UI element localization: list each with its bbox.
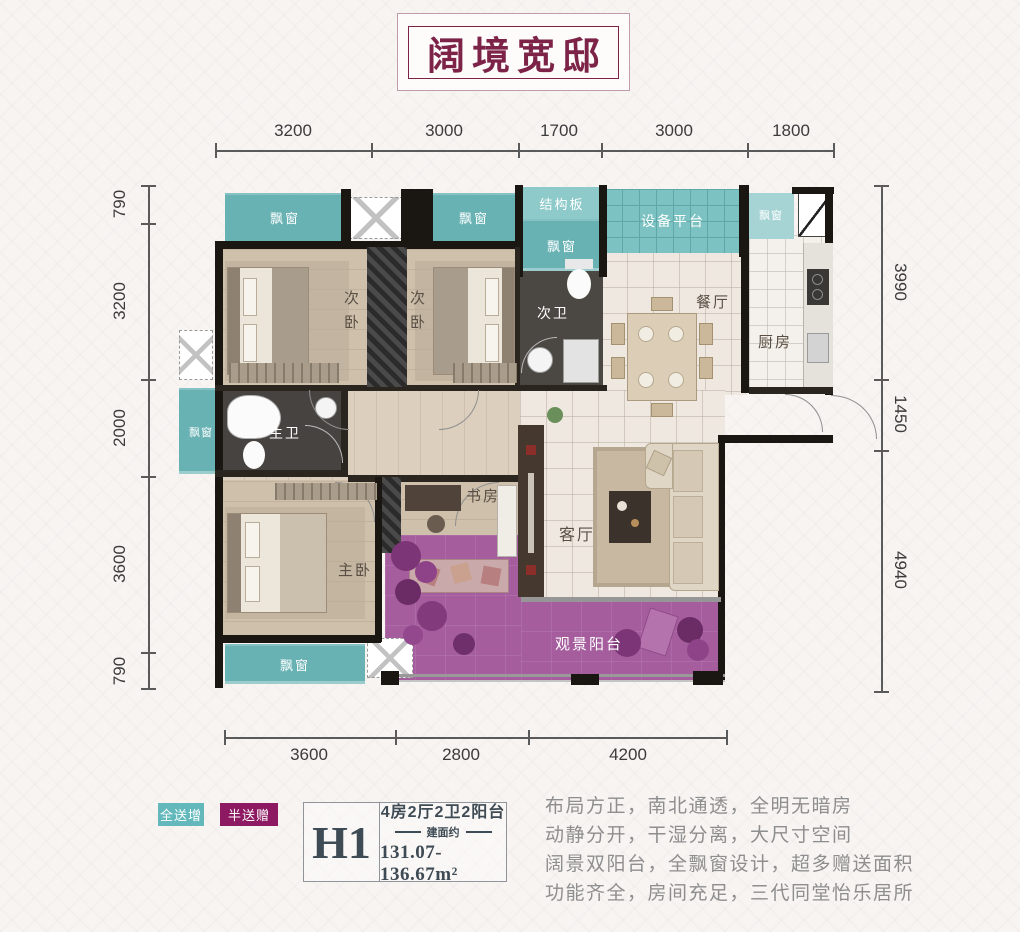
chair <box>699 323 713 345</box>
label-bay-window: 飘窗 <box>523 236 601 255</box>
floor-plan: 飘窗 飘窗 结构板 飘窗 设备平台 飘窗 飘窗 飘窗 次卧 次卧 次卫 餐厅 厨… <box>215 185 835 690</box>
dim-right-1: 3990 <box>890 247 910 317</box>
burner <box>812 274 823 285</box>
coffee-table <box>609 491 651 543</box>
dining-table <box>627 313 697 401</box>
decor <box>631 519 639 527</box>
decor <box>526 445 536 455</box>
balcony-plant <box>415 561 437 583</box>
plate <box>638 372 654 388</box>
dim-top-1: 3200 <box>258 121 328 141</box>
dim-line <box>224 737 728 739</box>
kitchen-counter <box>803 243 833 387</box>
bed-blanket <box>272 268 308 374</box>
shower <box>563 339 599 383</box>
railing-post <box>693 671 723 685</box>
legend-half-gift-badge: 半送赠 <box>220 803 278 826</box>
label-bay-window: 飘窗 <box>255 208 315 227</box>
pillow <box>245 522 260 558</box>
toilet <box>567 269 591 299</box>
dim-tick <box>518 143 520 158</box>
balcony-plant <box>687 639 709 661</box>
desk-chair <box>427 515 445 533</box>
wall-segment <box>515 385 607 391</box>
sofa-cushion <box>673 542 703 584</box>
dim-left-3: 2000 <box>110 393 130 463</box>
burner <box>812 289 823 300</box>
kitchen-sink <box>807 333 829 363</box>
balcony-plant <box>395 579 421 605</box>
dim-right-2: 1450 <box>890 379 910 449</box>
dim-tick <box>726 730 728 745</box>
unit-area-value: 131.07-136.67m² <box>380 842 506 886</box>
dim-tick <box>874 691 889 693</box>
page-title: 阔境宽邸 <box>420 25 607 80</box>
bed-blanket <box>280 514 326 612</box>
dim-tick <box>874 450 889 452</box>
legend-full-gift-badge: 全送增 <box>158 803 204 826</box>
bed-blanket <box>434 268 468 374</box>
door-arc-entry <box>831 395 877 439</box>
wardrobe-column <box>367 247 407 387</box>
bed-headboard <box>228 268 240 374</box>
label-bedroom2b: 次卧 <box>409 287 426 335</box>
balcony-plant <box>417 601 447 631</box>
dim-tick <box>833 143 835 158</box>
dim-tick <box>141 223 156 225</box>
label-bedroom2a: 次卧 <box>343 287 360 335</box>
bed <box>433 267 515 375</box>
dim-tick <box>141 185 156 187</box>
dimension-top: 3200 3000 1700 3000 1800 <box>215 118 835 166</box>
dim-tick <box>224 730 226 745</box>
dim-bottom-1: 3600 <box>274 745 344 765</box>
description: 布局方正，南北通透，全明无暗房 动静分开，干湿分离，大尺寸空间 阔景双阳台，全飘… <box>545 792 995 908</box>
tv-cabinet <box>518 425 544 597</box>
pillow <box>485 324 499 362</box>
wall-segment <box>749 387 833 394</box>
dim-left-2: 3200 <box>110 266 130 336</box>
label-equipment-platform: 设备平台 <box>605 211 741 231</box>
sofa-cushion <box>673 450 703 492</box>
title-frame: 阔境宽邸 <box>397 13 630 91</box>
dim-tick <box>141 379 156 381</box>
balcony-door-track <box>521 597 721 602</box>
description-line-1: 布局方正，南北通透，全明无暗房 <box>545 792 995 821</box>
dim-tick <box>215 143 217 158</box>
wardrobe <box>275 483 377 500</box>
balcony-railing <box>383 680 725 682</box>
legend-full-gift-label: 全送增 <box>160 805 202 824</box>
pillow <box>243 278 257 316</box>
dim-line <box>148 185 150 690</box>
description-line-4: 功能齐全，房间充足，三代同堂怡乐居所 <box>545 879 995 908</box>
dash-line <box>466 831 492 833</box>
pillow <box>450 562 472 584</box>
wall-segment <box>215 470 348 477</box>
desk <box>405 485 461 511</box>
sofa-cushion <box>673 496 703 538</box>
unit-card: H1 4房2厅2卫2阳台 建面约 131.07-136.67m² <box>303 802 507 882</box>
dim-top-3: 1700 <box>524 121 594 141</box>
wardrobe <box>453 363 517 383</box>
dim-tick <box>141 688 156 690</box>
dim-top-5: 1800 <box>756 121 826 141</box>
dim-tick <box>528 730 530 745</box>
toilet <box>565 259 593 269</box>
balcony-plant <box>403 625 423 645</box>
wall-segment <box>215 635 223 688</box>
wall-segment <box>215 635 381 643</box>
wall-segment <box>741 235 749 393</box>
label-master-bedroom: 主卧 <box>327 559 383 580</box>
pillow <box>481 566 502 587</box>
dim-right-3: 4940 <box>890 535 910 605</box>
balcony-plant <box>453 633 475 655</box>
dim-tick <box>874 185 889 187</box>
chair <box>651 297 673 311</box>
wardrobe <box>229 363 339 383</box>
dash-line <box>395 831 421 833</box>
label-study: 书房 <box>455 485 511 506</box>
dim-left-5: 790 <box>110 636 130 706</box>
plant <box>547 407 563 423</box>
bed <box>227 513 327 613</box>
dim-bottom-3: 4200 <box>593 745 663 765</box>
railing-post <box>571 674 599 685</box>
label-dining: 餐厅 <box>685 291 741 312</box>
dim-tick <box>141 652 156 654</box>
wall-segment <box>341 189 351 245</box>
study-bookshelf <box>382 477 401 553</box>
dimension-left: 790 3200 2000 3600 790 <box>100 185 162 690</box>
description-line-2: 动静分开，干湿分离，大尺寸空间 <box>545 821 995 850</box>
tv <box>528 473 534 553</box>
label-bay-window: 飘窗 <box>260 655 330 674</box>
sink <box>527 347 553 373</box>
unit-area-prefix: 建面约 <box>427 824 460 840</box>
title-inner-frame: 阔境宽邸 <box>408 26 619 79</box>
dim-top-4: 3000 <box>639 121 709 141</box>
railing-post <box>381 671 399 685</box>
dimension-bottom: 3600 2800 4200 <box>224 723 734 771</box>
chair <box>651 403 673 417</box>
dim-left-1: 790 <box>110 169 130 239</box>
dim-tick <box>141 476 156 478</box>
unit-layout: 4房2厅2卫2阳台 <box>381 798 506 822</box>
pillow <box>243 324 257 362</box>
label-structural-slab: 结构板 <box>523 194 601 213</box>
dim-bottom-2: 2800 <box>426 745 496 765</box>
sink <box>315 397 337 419</box>
unit-info: 4房2厅2卫2阳台 建面约 131.07-136.67m² <box>380 803 506 881</box>
pillow <box>245 566 260 602</box>
bed-headboard <box>502 268 514 374</box>
dim-line <box>881 185 883 693</box>
dim-tick <box>601 143 603 158</box>
chair <box>611 323 625 345</box>
dim-tick <box>874 379 889 381</box>
label-bay-window: 飘窗 <box>177 424 225 440</box>
stove <box>807 269 829 305</box>
description-line-3: 阔景双阳台，全飘窗设计，超多赠送面积 <box>545 850 995 879</box>
decor <box>617 501 627 511</box>
dim-left-4: 3600 <box>110 529 130 599</box>
label-master-bath: 主卫 <box>259 423 311 443</box>
balcony-railing <box>383 674 725 677</box>
dim-tick <box>371 143 373 158</box>
dim-top-2: 3000 <box>409 121 479 141</box>
pillow <box>485 278 499 316</box>
unit-code: H1 <box>304 803 380 881</box>
label-bath2: 次卫 <box>525 303 581 323</box>
ac-platform-top <box>349 197 403 239</box>
dim-tick <box>747 143 749 158</box>
toilet <box>243 441 265 469</box>
label-bay-window: 飘窗 <box>748 207 794 223</box>
unit-area-row: 建面约 <box>395 824 492 840</box>
sofa <box>669 443 719 591</box>
dimension-right: 3990 1450 4940 <box>873 185 933 695</box>
wall-segment <box>215 241 223 643</box>
ac-platform-left <box>179 330 213 380</box>
dim-tick <box>395 730 397 745</box>
chair <box>699 357 713 379</box>
label-living: 客厅 <box>549 521 605 545</box>
label-balcony: 观景阳台 <box>541 633 637 654</box>
decor <box>526 565 536 575</box>
dim-line <box>215 150 835 152</box>
label-bay-window: 飘窗 <box>444 208 504 227</box>
wall-segment <box>401 189 433 245</box>
label-kitchen: 厨房 <box>747 331 803 352</box>
wall-segment <box>723 435 833 443</box>
wall-segment <box>718 435 725 610</box>
bed-headboard <box>228 514 241 612</box>
plate <box>638 326 654 342</box>
legend-half-gift-label: 半送赠 <box>228 805 270 824</box>
door-arc-kitchen <box>785 394 823 432</box>
chair <box>611 357 625 379</box>
bed <box>227 267 309 375</box>
plate <box>668 326 684 342</box>
plate <box>668 372 684 388</box>
